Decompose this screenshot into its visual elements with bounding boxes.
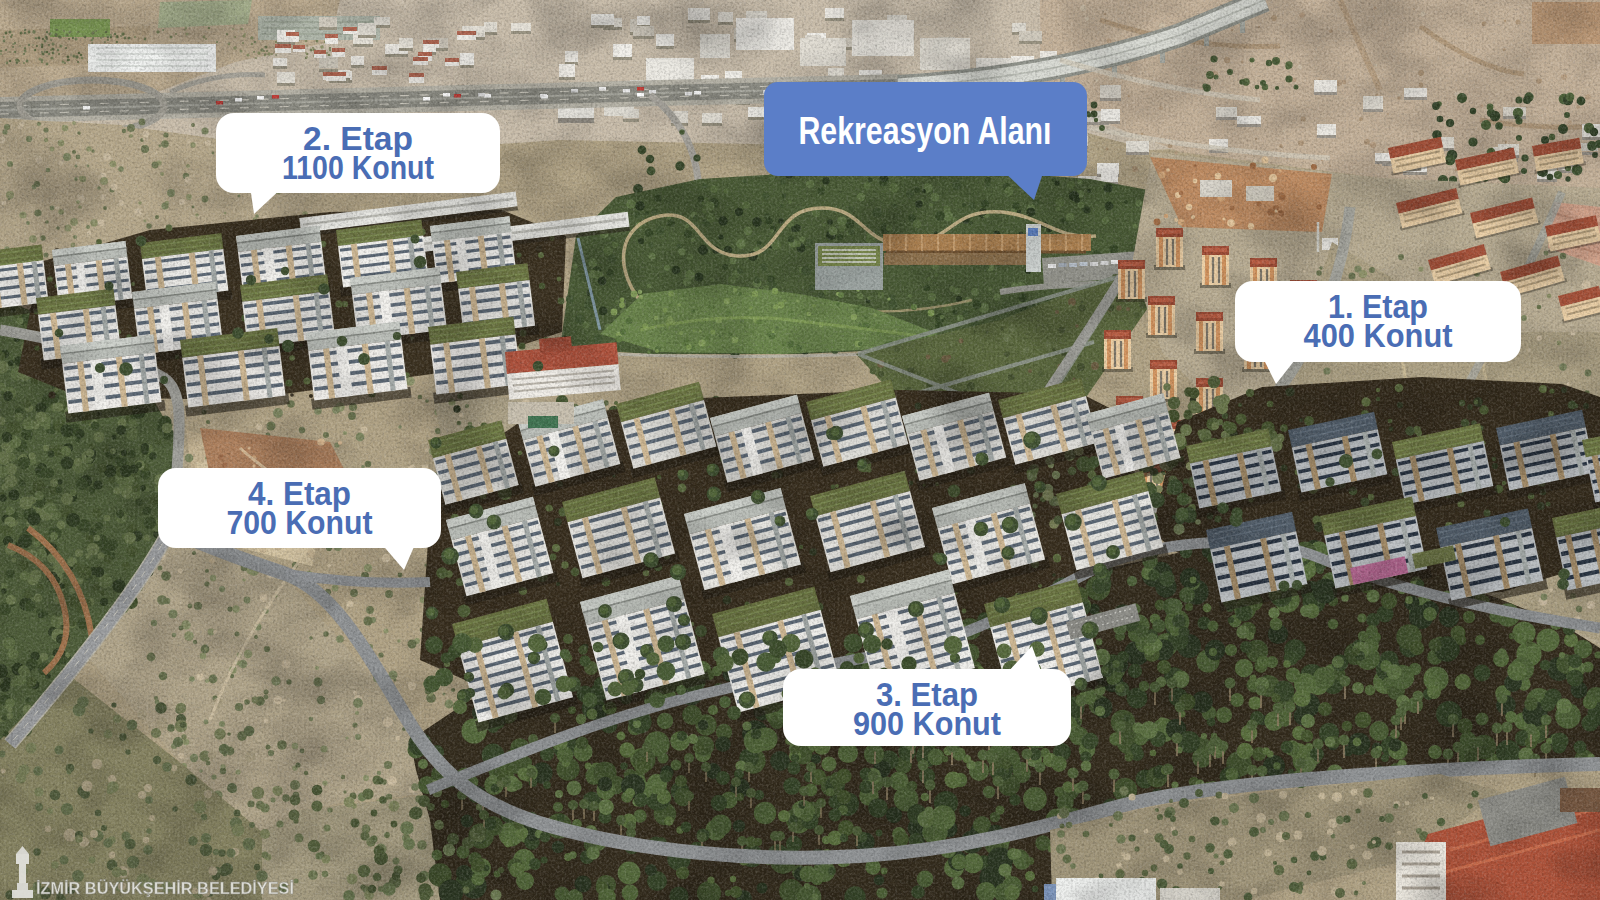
svg-text:900 Konut: 900 Konut	[853, 704, 1001, 742]
svg-text:400 Konut: 400 Konut	[1304, 316, 1453, 354]
svg-text:İZMİR BÜYÜKŞEHİR BELEDİYESİ: İZMİR BÜYÜKŞEHİR BELEDİYESİ	[36, 879, 294, 898]
svg-text:1100 Konut: 1100 Konut	[282, 148, 434, 186]
svg-text:700 Konut: 700 Konut	[227, 503, 373, 541]
svg-text:Rekreasyon Alanı: Rekreasyon Alanı	[799, 110, 1052, 152]
